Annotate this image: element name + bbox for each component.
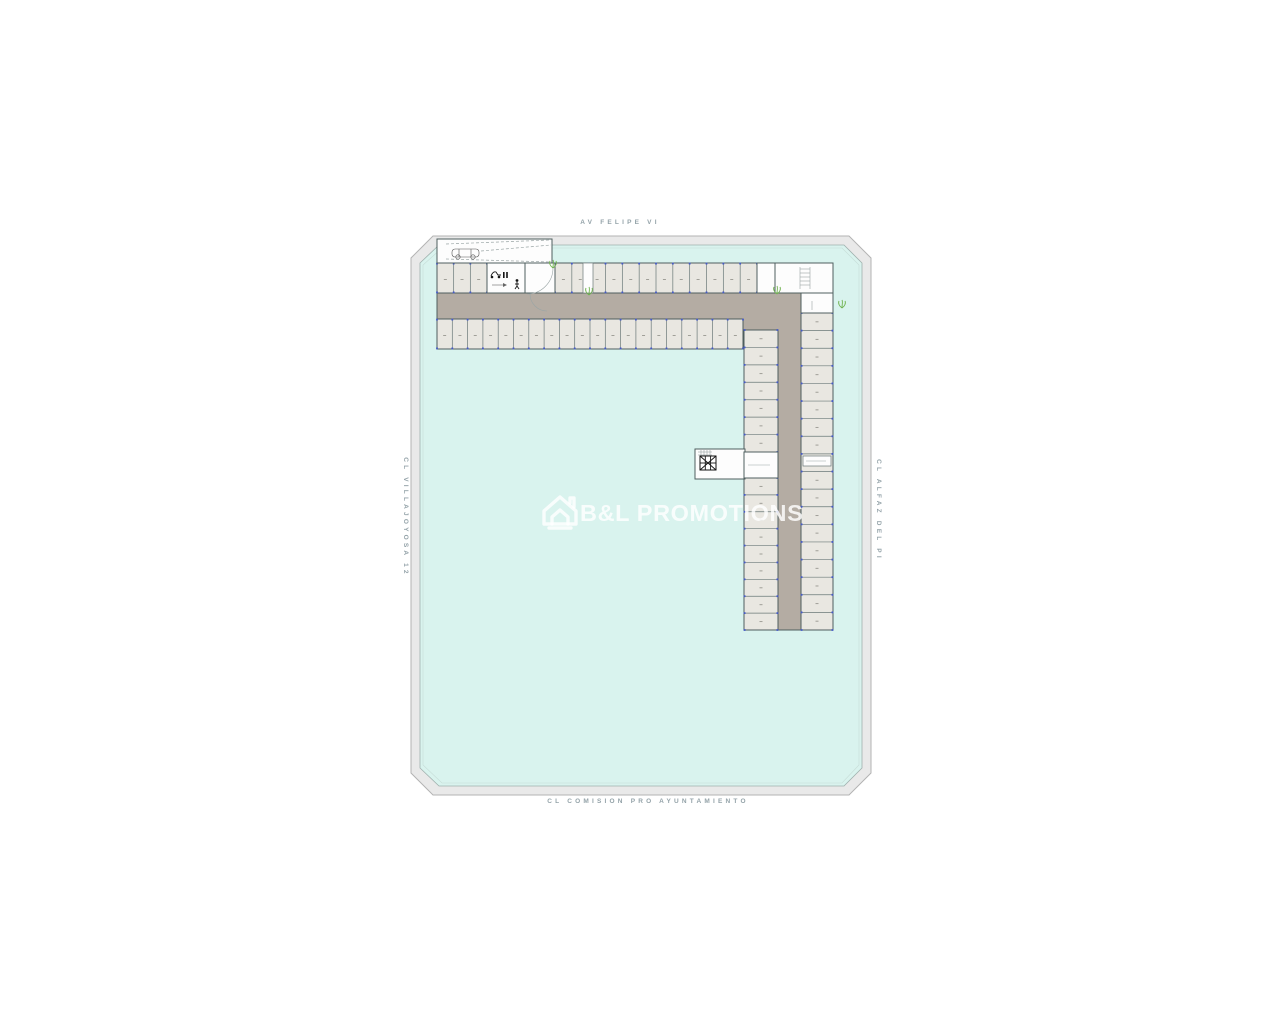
space-number-mark: [760, 537, 763, 538]
space-marker: [744, 364, 746, 366]
space-marker: [574, 319, 576, 321]
space-marker: [722, 292, 724, 294]
space-number-mark: [612, 279, 615, 280]
space-marker: [777, 329, 779, 331]
space-marker: [469, 292, 471, 294]
space-marker: [801, 365, 803, 367]
space-number-mark: [535, 335, 538, 336]
space-marker: [528, 319, 530, 321]
space-marker: [801, 576, 803, 578]
space-marker: [801, 383, 803, 385]
space-number-mark: [520, 335, 523, 336]
space-number-mark: [760, 443, 763, 444]
space-number-mark: [816, 339, 819, 340]
space-marker: [777, 434, 779, 436]
space-marker: [777, 416, 779, 418]
space-marker: [777, 612, 779, 614]
space-marker: [832, 611, 834, 613]
space-number-mark: [760, 604, 763, 605]
space-marker: [681, 319, 683, 321]
space-number-mark: [816, 515, 819, 516]
space-marker: [451, 348, 453, 350]
space-number-mark: [477, 279, 480, 280]
space-number-mark: [596, 279, 599, 280]
aisle-horizontal: [437, 293, 802, 319]
space-marker: [635, 348, 637, 350]
space-marker: [832, 594, 834, 596]
space-marker: [832, 576, 834, 578]
space-marker: [574, 348, 576, 350]
aisle-corner: [743, 319, 776, 330]
parking-row-slab: [437, 263, 487, 293]
space-marker: [467, 348, 469, 350]
space-marker: [801, 541, 803, 543]
space-marker: [744, 329, 746, 331]
space-marker: [467, 319, 469, 321]
space-marker: [744, 494, 746, 496]
space-marker: [832, 506, 834, 508]
space-number-mark: [444, 279, 447, 280]
space-marker: [744, 562, 746, 564]
space-marker: [832, 400, 834, 402]
space-marker: [681, 348, 683, 350]
space-number-mark: [627, 335, 630, 336]
space-marker: [620, 319, 622, 321]
space-marker: [744, 347, 746, 349]
space-marker: [777, 528, 779, 530]
space-number-mark: [760, 587, 763, 588]
space-number-mark: [816, 445, 819, 446]
space-number-mark: [760, 391, 763, 392]
space-marker: [497, 319, 499, 321]
space-marker: [744, 595, 746, 597]
space-number-mark: [760, 621, 763, 622]
space-number-mark: [816, 321, 819, 322]
space-marker: [832, 629, 834, 631]
space-marker: [436, 319, 438, 321]
space-number-mark: [816, 533, 819, 534]
space-number-mark: [816, 550, 819, 551]
space-marker: [605, 292, 607, 294]
space-marker: [832, 330, 834, 332]
space-marker: [742, 319, 744, 321]
space-marker: [666, 319, 668, 321]
space-marker: [777, 399, 779, 401]
space-marker: [801, 453, 803, 455]
space-marker: [635, 319, 637, 321]
space-marker: [638, 292, 640, 294]
space-number-mark: [730, 279, 733, 280]
space-marker: [801, 418, 803, 420]
street-label-top: AV FELIPE VI: [580, 219, 659, 226]
space-marker: [832, 471, 834, 473]
space-marker: [436, 348, 438, 350]
space-number-mark: [629, 279, 632, 280]
space-marker: [436, 292, 438, 294]
elevator-icon: [700, 456, 716, 470]
space-marker: [543, 319, 545, 321]
space-marker: [832, 559, 834, 561]
space-marker: [722, 263, 724, 265]
space-marker: [744, 545, 746, 547]
space-number-mark: [550, 335, 553, 336]
space-number-mark: [663, 279, 666, 280]
space-marker: [638, 263, 640, 265]
space-marker: [620, 348, 622, 350]
parking-row-outer-col: [801, 312, 834, 631]
space-number-mark: [566, 335, 569, 336]
space-marker: [513, 319, 515, 321]
space-marker: [744, 381, 746, 383]
space-marker: [777, 629, 779, 631]
space-number-mark: [719, 335, 722, 336]
space-marker: [744, 399, 746, 401]
space-marker: [801, 594, 803, 596]
space-number-mark: [760, 554, 763, 555]
space-marker: [621, 263, 623, 265]
space-number-mark: [646, 279, 649, 280]
space-marker: [801, 488, 803, 490]
labeled-room: [803, 456, 831, 466]
utility-room: [801, 293, 833, 313]
space-marker: [777, 595, 779, 597]
space-marker: [689, 292, 691, 294]
space-marker: [744, 528, 746, 530]
space-marker: [605, 263, 607, 265]
space-marker: [777, 562, 779, 564]
space-number-mark: [816, 480, 819, 481]
space-number-mark: [816, 409, 819, 410]
space-marker: [559, 319, 561, 321]
space-number-mark: [760, 570, 763, 571]
space-marker: [696, 319, 698, 321]
space-number-mark: [489, 335, 492, 336]
space-number-mark: [760, 338, 763, 339]
space-marker: [497, 348, 499, 350]
parking-row-top-row-left: [436, 263, 488, 294]
space-marker: [727, 348, 729, 350]
space-marker: [801, 400, 803, 402]
space-number-mark: [579, 279, 582, 280]
street-label-right: CL ALFAZ DEL PI: [875, 459, 882, 561]
space-marker: [777, 494, 779, 496]
space-number-mark: [688, 335, 691, 336]
space-number-mark: [642, 335, 645, 336]
space-marker: [832, 347, 834, 349]
space-marker: [650, 319, 652, 321]
space-marker: [672, 292, 674, 294]
space-marker: [696, 348, 698, 350]
space-marker: [655, 263, 657, 265]
street-label-left: CL VILLAJOYOSA 12: [402, 457, 409, 576]
space-marker: [453, 292, 455, 294]
entrance-ramp: [437, 239, 552, 263]
space-marker: [744, 612, 746, 614]
space-marker: [451, 319, 453, 321]
floor-plan-page: AV FELIPE VI CL COMISION PRO AYUNTAMIENT…: [0, 0, 1280, 1024]
space-marker: [666, 348, 668, 350]
space-marker: [777, 364, 779, 366]
space-number-mark: [816, 585, 819, 586]
space-number-mark: [458, 335, 461, 336]
space-number-mark: [816, 357, 819, 358]
space-marker: [621, 292, 623, 294]
space-marker: [801, 330, 803, 332]
space-number-mark: [816, 497, 819, 498]
space-marker: [777, 381, 779, 383]
aisle-vertical: [776, 293, 802, 630]
space-marker: [650, 348, 652, 350]
space-number-mark: [474, 335, 477, 336]
space-marker: [832, 488, 834, 490]
space-number-mark: [734, 335, 737, 336]
parking-row-inner-col-upper: [744, 329, 779, 453]
space-marker: [589, 319, 591, 321]
space-marker: [832, 435, 834, 437]
space-marker: [744, 578, 746, 580]
space-marker: [832, 453, 834, 455]
space-marker: [744, 629, 746, 631]
space-number-mark: [596, 335, 599, 336]
space-marker: [706, 263, 708, 265]
space-marker: [801, 347, 803, 349]
space-number-mark: [816, 603, 819, 604]
space-marker: [571, 292, 573, 294]
space-marker: [832, 383, 834, 385]
space-number-mark: [713, 279, 716, 280]
space-marker: [832, 365, 834, 367]
ramp-slab: [437, 239, 552, 263]
space-marker: [777, 347, 779, 349]
space-number-mark: [816, 568, 819, 569]
space-number-mark: [747, 279, 750, 280]
stair-room: [775, 263, 833, 293]
space-number-mark: [581, 335, 584, 336]
space-marker: [832, 541, 834, 543]
space-marker: [528, 348, 530, 350]
space-number-mark: [760, 486, 763, 487]
space-marker: [712, 348, 714, 350]
space-number-mark: [816, 392, 819, 393]
space-number-mark: [816, 427, 819, 428]
space-marker: [801, 559, 803, 561]
space-number-mark: [703, 335, 706, 336]
space-marker: [744, 416, 746, 418]
space-marker: [604, 319, 606, 321]
space-marker: [604, 348, 606, 350]
space-number-mark: [760, 408, 763, 409]
space-marker: [777, 545, 779, 547]
watermark: B&L PROMOTIONS: [544, 497, 803, 528]
space-number-mark: [816, 621, 819, 622]
space-marker: [801, 629, 803, 631]
space-marker: [672, 263, 674, 265]
space-number-mark: [443, 335, 446, 336]
space-marker: [559, 348, 561, 350]
space-marker: [589, 348, 591, 350]
space-marker: [777, 578, 779, 580]
space-marker: [706, 292, 708, 294]
watermark-brand: B&L PROMOTIONS: [580, 500, 803, 526]
space-number-mark: [760, 356, 763, 357]
utility-slot: [583, 263, 593, 293]
space-marker: [801, 611, 803, 613]
storage-room: [757, 263, 775, 293]
street-label-bottom: CL COMISION PRO AYUNTAMIENTO: [547, 798, 748, 805]
space-marker: [482, 319, 484, 321]
space-number-mark: [673, 335, 676, 336]
space-marker: [801, 471, 803, 473]
parking-row-bottom-row: [436, 319, 744, 350]
space-marker: [655, 292, 657, 294]
space-marker: [571, 263, 573, 265]
space-number-mark: [760, 373, 763, 374]
space-marker: [543, 348, 545, 350]
space-marker: [739, 263, 741, 265]
space-number-mark: [562, 279, 565, 280]
space-marker: [689, 263, 691, 265]
floor-plan-canvas: AV FELIPE VI CL COMISION PRO AYUNTAMIENT…: [0, 0, 1280, 1024]
space-number-mark: [816, 374, 819, 375]
space-number-mark: [657, 335, 660, 336]
stair-elevator-block: [695, 449, 778, 479]
space-marker: [727, 319, 729, 321]
space-number-mark: [760, 425, 763, 426]
space-number-mark: [461, 279, 464, 280]
space-number-mark: [611, 335, 614, 336]
space-number-mark: [697, 279, 700, 280]
space-marker: [739, 292, 741, 294]
space-marker: [513, 348, 515, 350]
space-marker: [712, 319, 714, 321]
space-marker: [832, 523, 834, 525]
space-marker: [744, 434, 746, 436]
pedestrian-lobby: [525, 263, 555, 293]
space-marker: [832, 418, 834, 420]
space-number-mark: [504, 335, 507, 336]
space-number-mark: [680, 279, 683, 280]
space-marker: [482, 348, 484, 350]
space-marker: [801, 435, 803, 437]
